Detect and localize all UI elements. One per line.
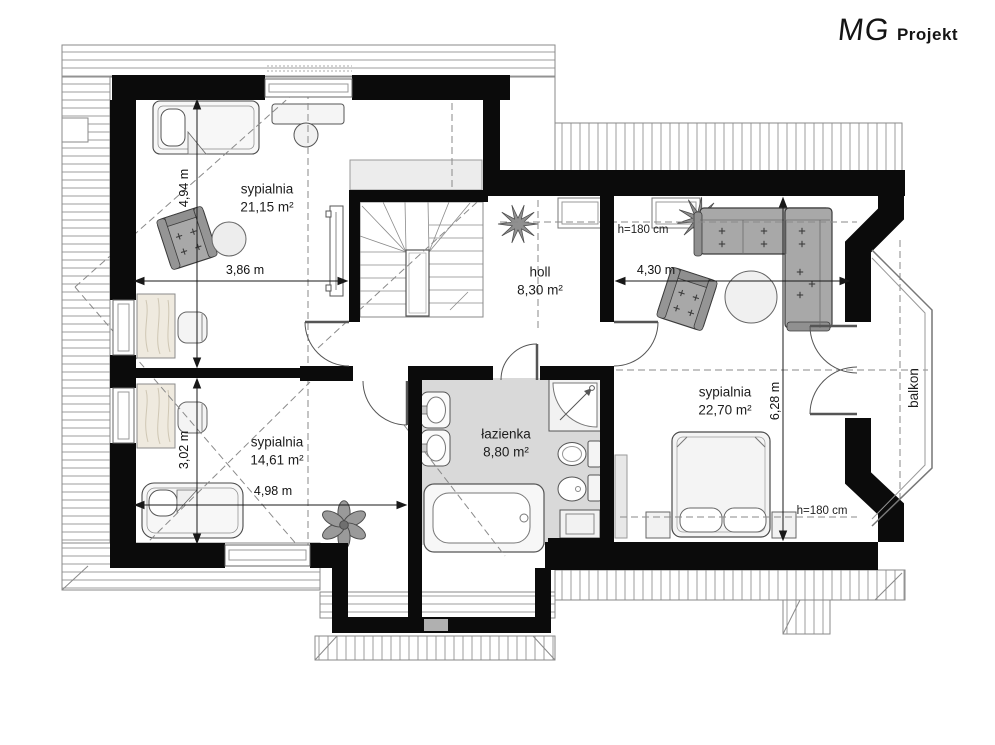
door-bedroom-bottom-left <box>363 381 407 425</box>
washing-machine-icon <box>560 510 600 538</box>
shower-icon <box>549 379 601 431</box>
ceiling-height-label-bedroom: h=180 cm <box>797 505 848 517</box>
floor-plan-page: sypialnia 21,15 m² holl 8,30 m² sypialni… <box>0 0 995 745</box>
room-name: sypialnia <box>250 433 303 451</box>
dimension-label-302: 3,02 m <box>177 431 191 469</box>
room-label-bedroom-top-left: sypialnia 21,15 m² <box>240 180 293 215</box>
room-area: 8,30 m² <box>517 281 563 299</box>
floor-plan-drawing <box>0 0 995 745</box>
window-dormer <box>424 619 448 631</box>
staircase <box>360 202 483 317</box>
window-left-lower <box>113 388 134 443</box>
bed-double <box>646 432 796 538</box>
bathtub-icon <box>424 484 544 552</box>
room-name: sypialnia <box>240 180 293 198</box>
armchair-top-left <box>156 206 218 270</box>
room-label-hall: holl 8,30 m² <box>517 263 563 298</box>
coffee-table <box>725 271 777 323</box>
dimension-label-386: 3,86 m <box>226 263 264 277</box>
sink-icon <box>421 392 450 428</box>
room-label-bedroom-bottom-left: sypialnia 14,61 m² <box>250 433 303 468</box>
brand-logo: MG Projekt <box>838 12 958 48</box>
door-balcony-right <box>810 367 857 414</box>
bidet-icon <box>558 475 601 501</box>
room-area: 22,70 m² <box>698 401 751 419</box>
room-area: 21,15 m² <box>240 198 293 216</box>
plant-bedroom-bottom <box>320 501 368 550</box>
toilet-icon <box>558 441 601 467</box>
brand-logo-projekt: Projekt <box>897 25 958 45</box>
room-name: łazienka <box>481 425 531 443</box>
door-bedroom-top-left <box>305 322 349 366</box>
door-bathroom <box>501 344 537 380</box>
dimension-label-628: 6,28 m <box>768 382 782 420</box>
dimension-label-430: 4,30 m <box>637 263 675 277</box>
room-name: holl <box>517 263 563 281</box>
door-balcony-left <box>810 326 857 373</box>
room-area: 8,80 m² <box>481 443 531 461</box>
room-label-bedroom-right: sypialnia 22,70 m² <box>698 383 751 418</box>
brand-logo-mg: MG <box>836 12 892 48</box>
window-bottom <box>225 545 310 566</box>
door-bedroom-right <box>614 322 658 366</box>
window-top <box>265 79 352 97</box>
room-area: 14,61 m² <box>250 451 303 469</box>
bed-single-top <box>153 101 259 154</box>
ceiling-height-label-hall: h=180 cm <box>618 224 669 236</box>
room-label-bathroom: łazienka 8,80 m² <box>481 425 531 460</box>
room-name: sypialnia <box>698 383 751 401</box>
plant-hall <box>498 205 538 243</box>
side-table-top-left <box>212 222 246 256</box>
dimension-label-494: 4,94 m <box>177 169 191 207</box>
bed-single-bottom <box>142 483 243 538</box>
dimension-label-498: 4,98 m <box>254 484 292 498</box>
sink-icon <box>421 430 450 466</box>
window-left-upper <box>113 300 134 355</box>
balcony-label: balkon <box>905 368 923 408</box>
